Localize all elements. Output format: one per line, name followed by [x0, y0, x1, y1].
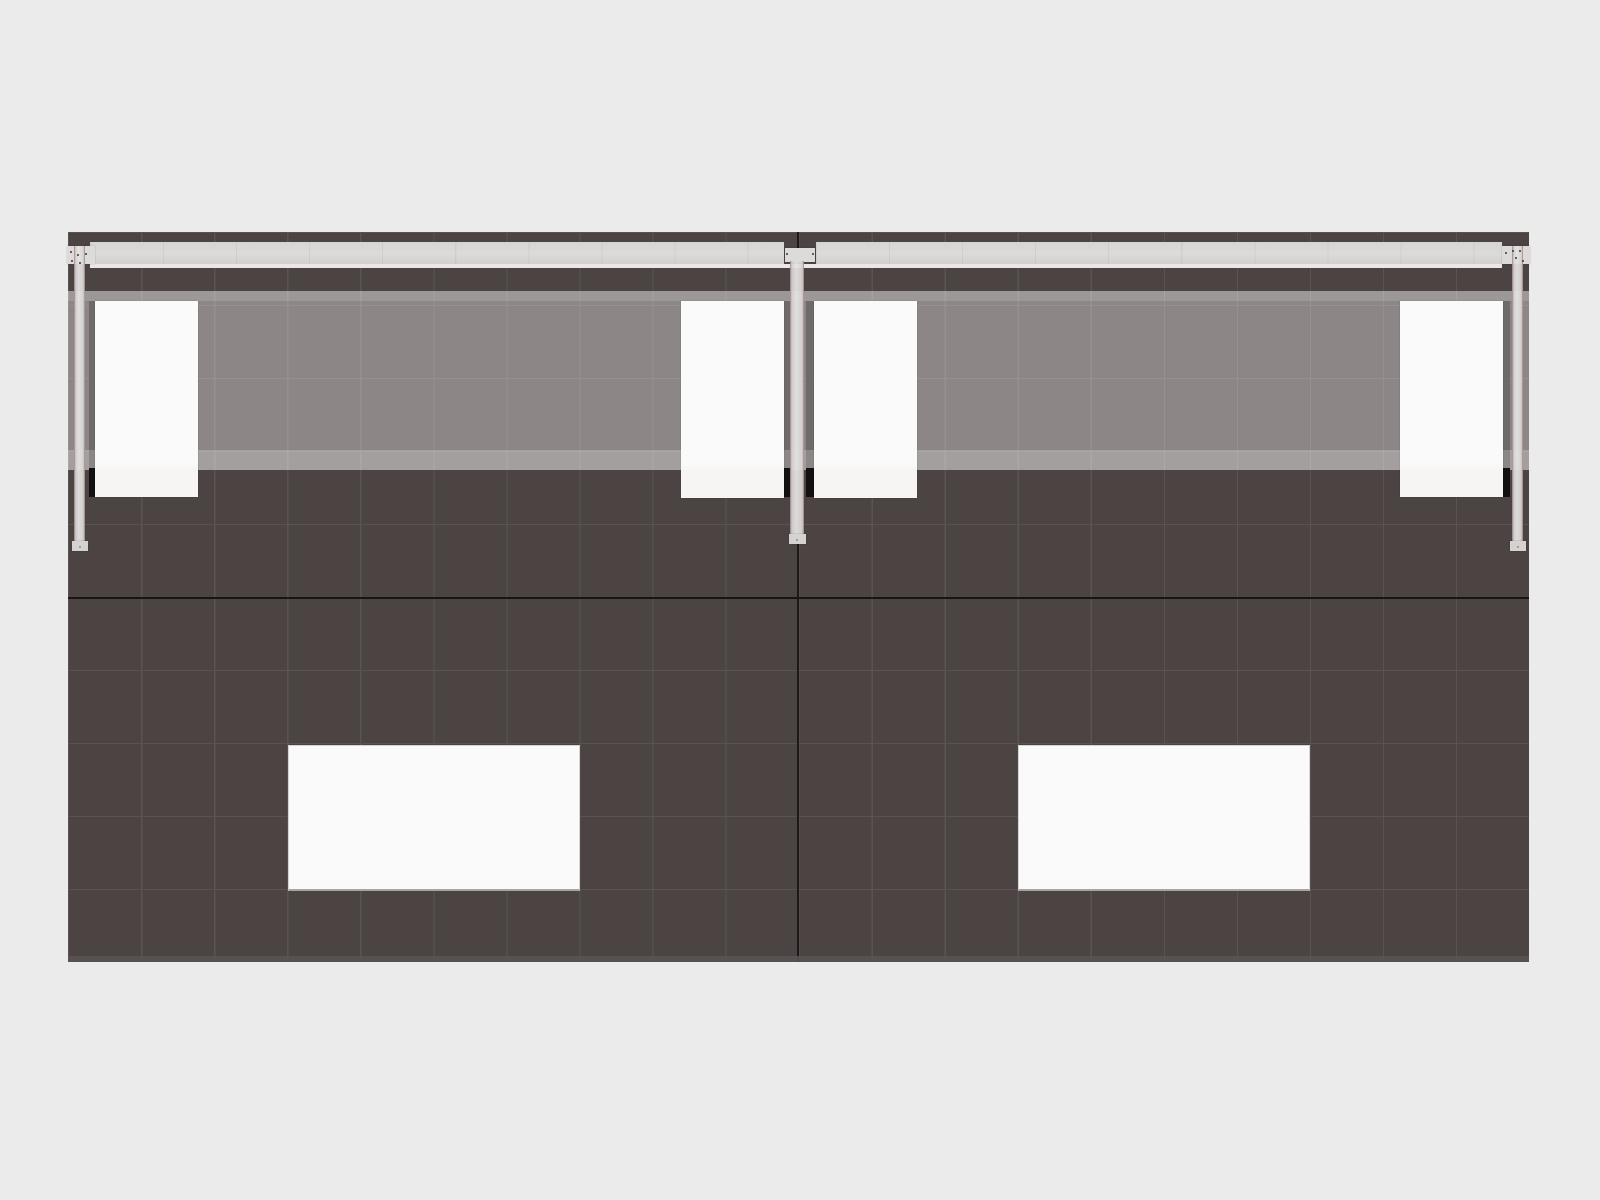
monitor-shadow-dark-right-inner	[806, 468, 814, 497]
top-rail-right	[816, 242, 1502, 264]
foot-bolt-center	[796, 539, 799, 542]
support-post-center	[790, 261, 804, 538]
display-panel-2	[681, 301, 784, 498]
counter-insert-right	[1018, 745, 1310, 891]
rail-plate-center	[785, 248, 815, 262]
display-panel-3	[814, 301, 917, 498]
display-panel-4	[1400, 301, 1503, 497]
top-rail-left	[90, 242, 784, 264]
foot-bolt-left	[79, 546, 82, 549]
support-post-right	[1512, 246, 1523, 543]
elevation-render-canvas	[0, 0, 1600, 1200]
bottom-edge-trim	[68, 956, 1529, 962]
display-panel-1	[95, 301, 198, 497]
foot-bolt-right	[1517, 546, 1520, 549]
support-post-left	[74, 246, 85, 543]
monitor-shadow-dark-right-outer	[1503, 468, 1510, 497]
bolt	[1522, 260, 1524, 262]
bolt	[812, 253, 814, 255]
counter-insert-left	[288, 745, 580, 891]
